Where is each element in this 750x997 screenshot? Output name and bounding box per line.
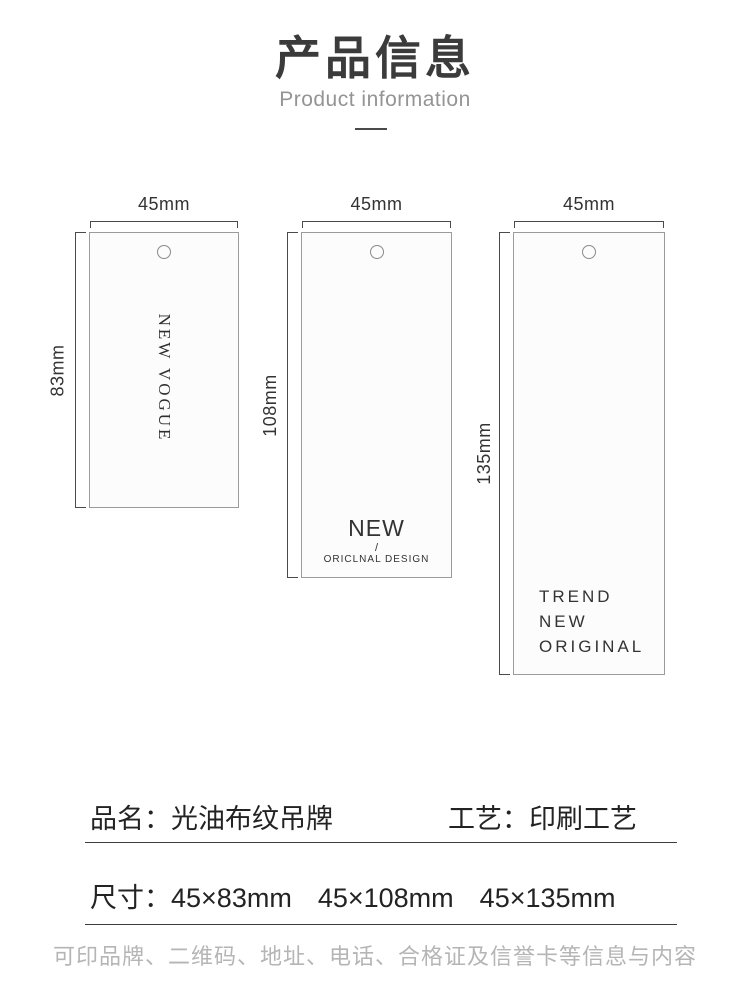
info-divider-1 [85, 842, 677, 843]
product-name-value: 光油布纹吊牌 [171, 804, 333, 834]
info-divider-2 [85, 924, 677, 925]
size-value: 45×83mm [171, 883, 292, 913]
tag2-width-bracket [302, 221, 451, 228]
hang-tag-45x108: NEW / ORICLNAL DESIGN [301, 232, 452, 578]
tag-hole-icon [582, 245, 596, 259]
tag2-height-label: 108mm [258, 232, 282, 578]
tag1-vertical-text: NEW VOGUE [154, 314, 174, 443]
tag3-width-bracket [514, 221, 664, 228]
tag-hole-icon [157, 245, 171, 259]
tag2-headline: NEW [302, 516, 451, 540]
title-divider [355, 128, 387, 130]
tag1-height-bracket [75, 232, 86, 508]
size-row: 尺寸：45×83mm45×108mm45×135mm [90, 876, 616, 915]
size-value: 45×135mm [480, 883, 616, 913]
tag3-height-bracket [499, 232, 510, 675]
product-name-row: 品名：光油布纹吊牌 [90, 797, 333, 836]
tag3-line: TREND [539, 584, 644, 609]
tag2-text-block: NEW / ORICLNAL DESIGN [302, 516, 451, 566]
hang-tag-45x83: NEW VOGUE [89, 232, 239, 508]
tag1-width-bracket [90, 221, 238, 228]
page-title: 产品信息 [0, 22, 750, 88]
size-value: 45×108mm [318, 883, 454, 913]
tag1-height-label: 83mm [46, 232, 70, 508]
tag3-width-label: 45mm [513, 194, 665, 215]
printable-content-note: 可印品牌、二维码、地址、电话、合格证及信誉卡等信息与内容 [0, 939, 750, 971]
tag2-subline: ORICLNAL DESIGN [302, 554, 451, 566]
size-label: 尺寸： [90, 883, 171, 913]
tag-hole-icon [370, 245, 384, 259]
tag3-line: ORIGINAL [539, 634, 644, 659]
tag3-text-block: TREND NEW ORIGINAL [539, 584, 644, 659]
page-subtitle: Product information [0, 88, 750, 112]
tag3-line: NEW [539, 609, 644, 634]
tag3-height-label: 135mm [472, 232, 496, 675]
hang-tag-45x135: TREND NEW ORIGINAL [513, 232, 665, 675]
process-label: 工艺： [448, 804, 529, 834]
process-row: 工艺：印刷工艺 [448, 797, 637, 836]
product-name-label: 品名： [90, 804, 171, 834]
product-info-page: 产品信息 Product information 45mm 83mm NEW V… [0, 0, 750, 997]
tag1-width-label: 45mm [89, 194, 239, 215]
process-value: 印刷工艺 [529, 804, 637, 834]
tag2-slash: / [302, 542, 451, 554]
tag2-width-label: 45mm [301, 194, 452, 215]
tag2-height-bracket [287, 232, 298, 578]
